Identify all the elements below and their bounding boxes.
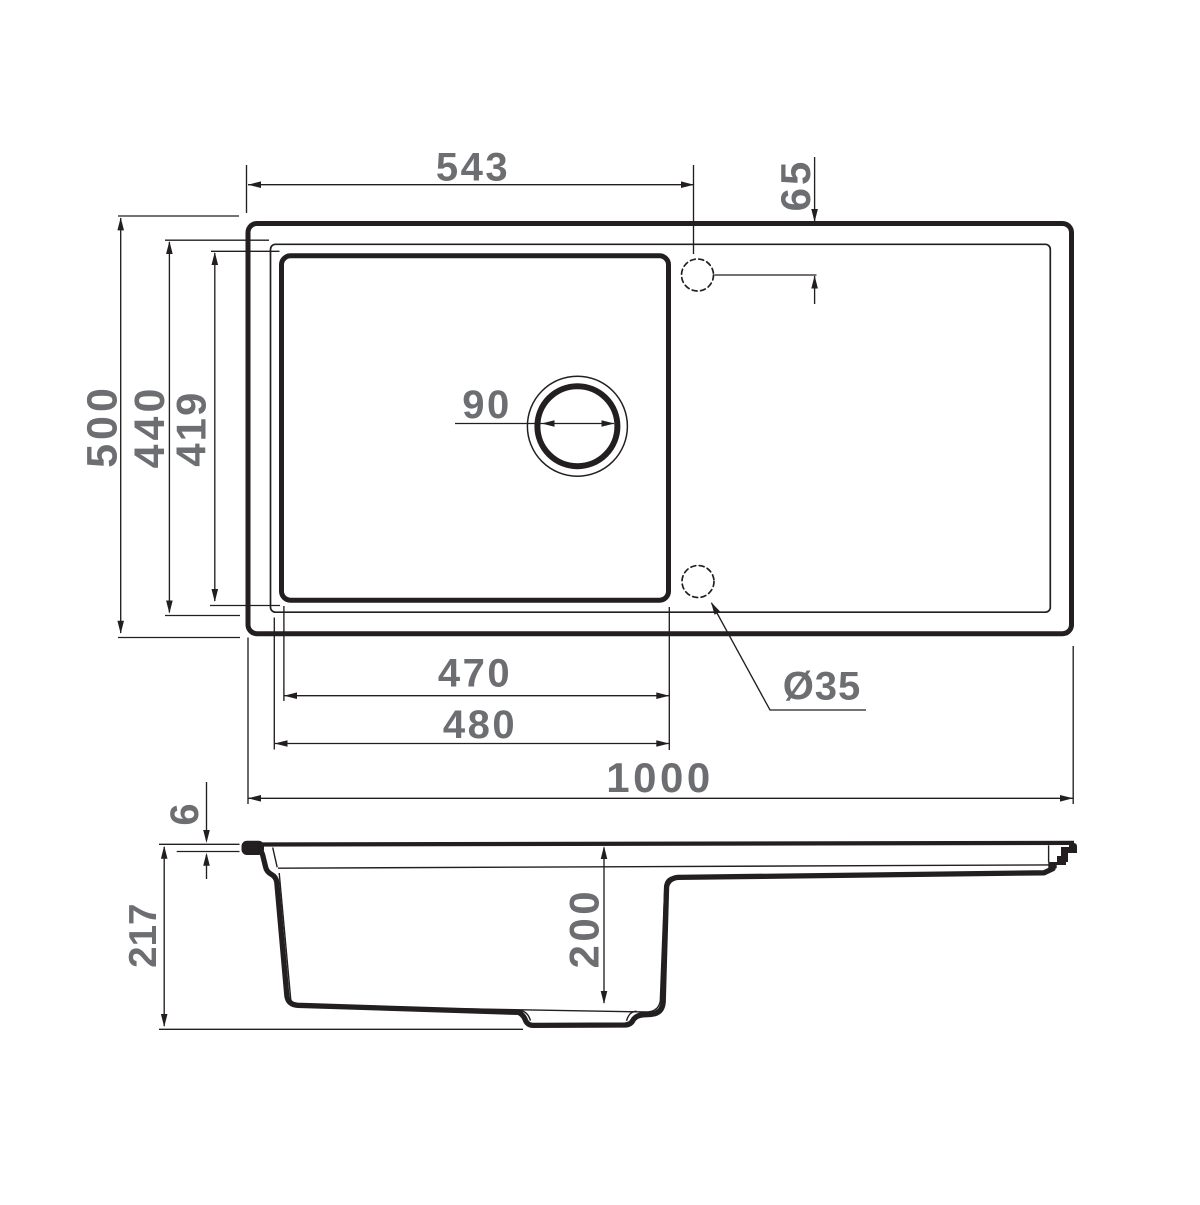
svg-text:480: 480 [443,703,517,747]
svg-text:200: 200 [560,888,607,969]
svg-text:217: 217 [122,904,165,968]
svg-text:90: 90 [462,383,512,427]
svg-text:470: 470 [438,651,512,695]
svg-text:6: 6 [163,801,207,826]
svg-text:543: 543 [436,145,510,189]
svg-text:Ø35: Ø35 [783,664,862,708]
svg-text:500: 500 [79,384,127,468]
svg-text:1000: 1000 [606,754,713,801]
svg-text:65: 65 [772,159,819,212]
svg-text:419: 419 [168,391,215,467]
